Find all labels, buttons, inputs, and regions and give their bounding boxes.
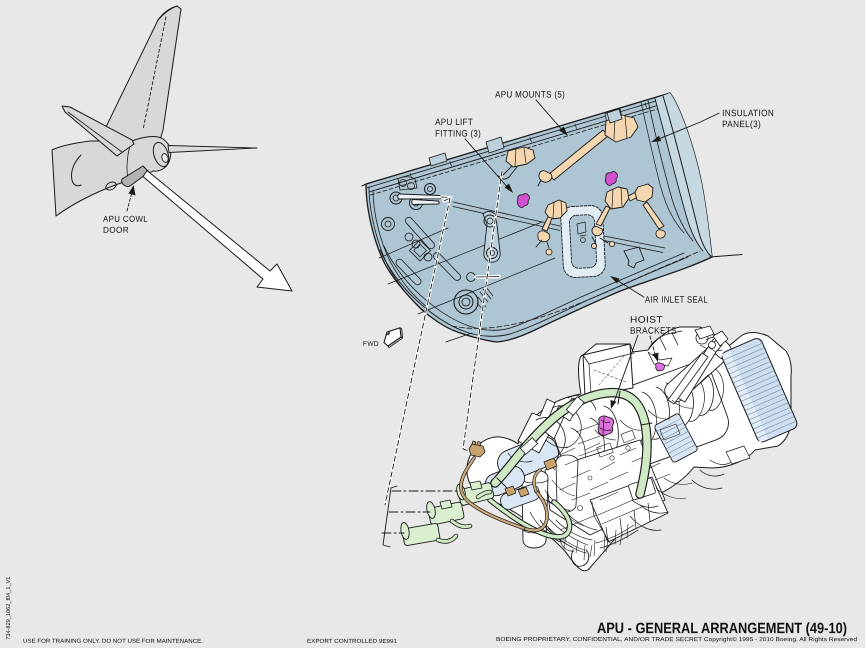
svg-text:DOOR: DOOR <box>103 225 129 235</box>
svg-text:APU - GENERAL ARRANGEMENT (49-: APU - GENERAL ARRANGEMENT (49-10) <box>597 620 847 637</box>
svg-text:EXPORT CONTROLLED 9E991: EXPORT CONTROLLED 9E991 <box>307 638 397 645</box>
svg-text:AIR INLET SEAL: AIR INLET SEAL <box>645 295 708 305</box>
svg-text:FWD: FWD <box>363 341 379 348</box>
svg-text:734-829_1062_f04_1_V1: 734-829_1062_f04_1_V1 <box>5 577 12 640</box>
svg-text:HOIST: HOIST <box>630 315 663 325</box>
svg-text:BOEING PROPRIETARY, CONFIDENTI: BOEING PROPRIETARY, CONFIDENTIAL, AND/OR… <box>496 636 857 643</box>
svg-text:FITTING (3): FITTING (3) <box>435 128 481 138</box>
svg-text:APU LIFT: APU LIFT <box>435 117 473 127</box>
svg-text:APU MOUNTS (5): APU MOUNTS (5) <box>495 89 565 99</box>
svg-text:INSULATION: INSULATION <box>722 108 774 118</box>
svg-text:USE FOR TRAINING ONLY. DO NOT: USE FOR TRAINING ONLY. DO NOT USE FOR MA… <box>23 638 203 645</box>
svg-text:PANEL(3): PANEL(3) <box>722 119 761 129</box>
svg-text:APU COWL: APU COWL <box>103 214 148 224</box>
svg-text:BRACKETS: BRACKETS <box>630 326 677 336</box>
